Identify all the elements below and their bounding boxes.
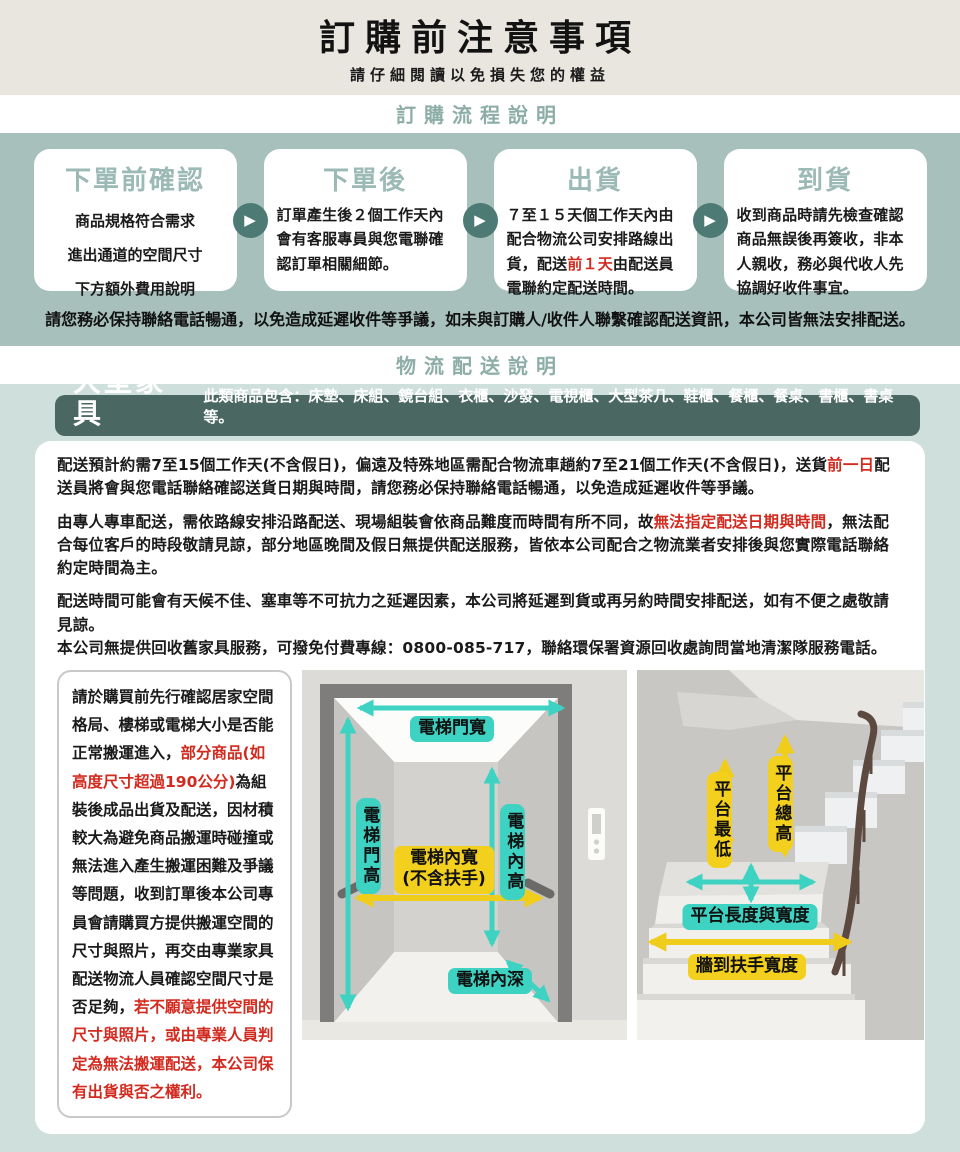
step-tread bbox=[637, 994, 855, 1000]
label-platform-length-width: 平台長度與寬度 bbox=[683, 904, 818, 930]
step-body: 收到商品時請先檢查確認商品無誤後再簽收，非本人親收，務必與代收人先協調好收件事宜… bbox=[737, 203, 914, 300]
step-tread bbox=[903, 702, 924, 709]
label-line: 電梯內寬 bbox=[402, 848, 486, 869]
step-box-arrival: 到貨 收到商品時請先檢查確認商品無誤後再簽收，非本人親收，務必與代收人先協調好收… bbox=[724, 149, 927, 291]
page-subtitle: 請仔細閱讀以免損失您的權益 bbox=[0, 64, 960, 85]
step-line: 進出通道的空間尺寸 bbox=[47, 244, 224, 265]
section-band-process: 訂購流程說明 bbox=[0, 95, 960, 133]
step-tread bbox=[825, 792, 877, 799]
label-elevator-door-width: 電梯門寬 bbox=[410, 716, 494, 742]
step-front bbox=[881, 736, 924, 762]
order-process-section: 下單前確認 商品規格符合需求 進出通道的空間尺寸 下方額外費用說明 ▶ 下單後 … bbox=[0, 133, 960, 346]
elevator-button-down bbox=[594, 848, 599, 853]
label-platform-total: 平台總高 bbox=[768, 756, 793, 852]
category-title: 大型家具 bbox=[73, 366, 193, 430]
delivery-paragraph-1: 配送預計約需7至15個工作天(不含假日)，偏遠及特殊地區需配合物流車趟約7至21… bbox=[57, 454, 903, 501]
elevator-button-up bbox=[594, 839, 599, 844]
step-tread bbox=[795, 826, 847, 833]
step-tread bbox=[853, 760, 905, 767]
arrow-right-icon: ▶ bbox=[233, 203, 268, 238]
step-title: 出貨 bbox=[507, 160, 684, 197]
step-title: 到貨 bbox=[737, 160, 914, 197]
stairs-illustration bbox=[637, 670, 924, 1040]
page-title: 訂購前注意事項 bbox=[0, 9, 960, 61]
label-elevator-inner-height: 電梯內高 bbox=[500, 804, 525, 900]
section-title-logistics: 物流配送說明 bbox=[396, 354, 564, 378]
step-box-shipping: 出貨 ７至１５天個工作天內由配合物流公司安排路線出貨，配送前１天由配送員電聯約定… bbox=[494, 149, 697, 291]
large-furniture-card: 配送預計約需7至15個工作天(不含假日)，偏遠及特殊地區需配合物流車趟約7至21… bbox=[35, 441, 925, 1134]
label-elevator-inner-width: 電梯內寬 (不含扶手) bbox=[394, 846, 494, 894]
step-title: 下單前確認 bbox=[47, 160, 224, 197]
logistics-section: 大型家具 此類商品包含：床墊、床組、鏡台組、衣櫃、沙發、電視櫃、大型茶几、鞋櫃、… bbox=[0, 384, 960, 1152]
label-platform-min: 平台最低 bbox=[707, 772, 732, 868]
section-title-process: 訂購流程說明 bbox=[396, 103, 564, 127]
step-box-after-order: 下單後 訂單產生後２個工作天內會有客服專員與您電聯確認訂單相關細節。 bbox=[264, 149, 467, 291]
label-wall-to-rail: 牆到扶手寬度 bbox=[688, 954, 806, 980]
arrow-right-icon: ▶ bbox=[693, 203, 728, 238]
page-header: 訂購前注意事項 請仔細閱讀以免損失您的權益 bbox=[0, 0, 960, 95]
step-lines: 商品規格符合需求 進出通道的空間尺寸 下方額外費用說明 bbox=[47, 210, 224, 299]
elevator-diagram: 電梯門寬 電梯門高 電梯內高 電梯內寬 (不含扶手) 電梯內深 bbox=[302, 670, 627, 1040]
label-line: (不含扶手) bbox=[402, 869, 486, 890]
step-title: 下單後 bbox=[277, 160, 454, 197]
delivery-paragraph-3: 配送時間可能會有天候不佳、塞車等不可抗力之延遲因素，本公司將延遲到貨或再另約時間… bbox=[57, 590, 903, 660]
delivery-paragraph-2: 由專人專車配送，需依路線安排沿路配送、現場組裝會依商品難度而時間有所不同，故無法… bbox=[57, 511, 903, 581]
step-body: ７至１５天個工作天內由配合物流公司安排路線出貨，配送前１天由配送員電聯約定配送時… bbox=[507, 203, 684, 300]
step-front bbox=[825, 798, 877, 828]
process-steps-row: 下單前確認 商品規格符合需求 進出通道的空間尺寸 下方額外費用說明 ▶ 下單後 … bbox=[0, 149, 960, 291]
arrow-right-icon: ▶ bbox=[463, 203, 498, 238]
label-elevator-door-height: 電梯門高 bbox=[356, 798, 381, 894]
step-front bbox=[637, 1000, 865, 1040]
step-front bbox=[903, 708, 924, 732]
step-box-before-order: 下單前確認 商品規格符合需求 進出通道的空間尺寸 下方額外費用說明 bbox=[34, 149, 237, 291]
step-line: 下方額外費用說明 bbox=[47, 278, 224, 299]
category-includes: 此類商品包含：床墊、床組、鏡台組、衣櫃、沙發、電視櫃、大型茶几、鞋櫃、餐櫃、餐桌… bbox=[203, 385, 902, 430]
space-confirmation-note: 請於購買前先行確認居家空間格局、樓梯或電梯大小是否能正常搬運進入，部分商品(如高… bbox=[57, 670, 292, 1118]
step-front bbox=[795, 832, 847, 864]
step-line: 商品規格符合需求 bbox=[47, 210, 224, 231]
elevator-outer-floor bbox=[302, 1020, 627, 1040]
step-tread bbox=[881, 730, 924, 737]
platform-tread bbox=[659, 862, 829, 896]
stairs-diagram: 平台最低 平台總高 平台長度與寬度 牆到扶手寬度 bbox=[637, 670, 924, 1040]
purchase-notice-page: 訂購前注意事項 請仔細閱讀以免損失您的權益 訂購流程說明 下單前確認 商品規格符… bbox=[0, 0, 960, 1152]
elevator-panel-display bbox=[592, 814, 601, 834]
category-header-large-furniture: 大型家具 此類商品包含：床墊、床組、鏡台組、衣櫃、沙發、電視櫃、大型茶几、鞋櫃、… bbox=[55, 395, 920, 436]
step-body: 訂單產生後２個工作天內會有客服專員與您電聯確認訂單相關細節。 bbox=[277, 203, 454, 276]
label-elevator-inner-depth: 電梯內深 bbox=[448, 968, 532, 994]
measurement-diagrams: 請於購買前先行確認居家空間格局、樓梯或電梯大小是否能正常搬運進入，部分商品(如高… bbox=[57, 670, 903, 1118]
